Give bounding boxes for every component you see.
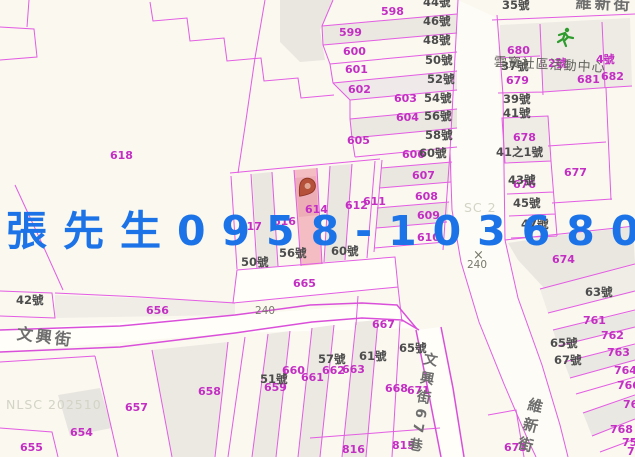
map-label: 658 [198, 386, 221, 397]
map-label: 599 [339, 27, 362, 38]
map-label: 762 [601, 330, 624, 341]
map-label: 764 [614, 365, 635, 376]
map-label: 76 [627, 446, 635, 457]
map-label: 768 [610, 424, 633, 435]
map-label: 602 [348, 84, 371, 95]
map-label: 657 [125, 402, 148, 413]
map-label: 761 [583, 315, 606, 326]
map-label: 679 [506, 75, 529, 86]
map-label: 600 [343, 46, 366, 57]
map-label: 766 [617, 380, 635, 391]
map-label: 601 [345, 64, 368, 75]
map-label: 56號 [424, 111, 452, 123]
map-label: 46號 [423, 16, 451, 28]
map-label: 603 [394, 93, 417, 104]
map-label: 41之1號 [496, 147, 543, 159]
map-label: 41號 [503, 108, 531, 120]
contact-watermark: 張先生0958-103680 [6, 197, 635, 257]
map-label: 240 [467, 260, 487, 271]
map-label: 680 [507, 45, 530, 56]
map-label: 598 [381, 6, 404, 17]
map-label: 維新街 [575, 0, 633, 13]
map-label: 42號 [16, 295, 44, 307]
map-label: 52號 [427, 74, 455, 86]
cadastral-map[interactable]: 5985996006016026036046056066076086096106… [0, 0, 635, 457]
map-label: 667 [372, 319, 395, 330]
map-label: 618 [110, 150, 133, 161]
map-label: 50號 [425, 55, 453, 67]
map-label: 44號 [423, 0, 451, 9]
map-label: 816 [342, 444, 365, 455]
map-label: 65號 [550, 338, 578, 350]
map-label: 655 [20, 442, 43, 453]
map-label: 63號 [585, 287, 613, 299]
map-label: 39號 [503, 94, 531, 106]
map-label: 665 [293, 278, 316, 289]
activity-center-icon [554, 26, 576, 48]
map-label: 681 [577, 74, 600, 85]
map-label: 54號 [424, 93, 452, 105]
map-label: 50號 [241, 257, 269, 269]
map-label: 656 [146, 305, 169, 316]
map-label: 604 [396, 112, 419, 123]
map-label: 48號 [423, 35, 451, 47]
map-label: 654 [70, 427, 93, 438]
map-label: 43號 [508, 175, 536, 187]
map-label: NLSC 202510 [6, 399, 102, 412]
map-label: 677 [564, 167, 587, 178]
map-label: 661 [301, 372, 324, 383]
map-label: 57號 [318, 354, 346, 366]
map-label: 767 [623, 399, 635, 410]
map-label: 678 [513, 132, 536, 143]
map-label: 61號 [359, 351, 387, 363]
map-label: 51號 [260, 374, 288, 386]
map-label: 605 [347, 135, 370, 146]
map-label: 668 [385, 383, 408, 394]
map-label: 67號 [554, 355, 582, 367]
map-label: 763 [607, 347, 630, 358]
map-label: 35號 [502, 0, 530, 12]
map-label: 240 [255, 306, 275, 317]
map-label: 58號 [425, 130, 453, 142]
map-label: 607 [412, 170, 435, 181]
map-label: 60號 [419, 148, 447, 160]
